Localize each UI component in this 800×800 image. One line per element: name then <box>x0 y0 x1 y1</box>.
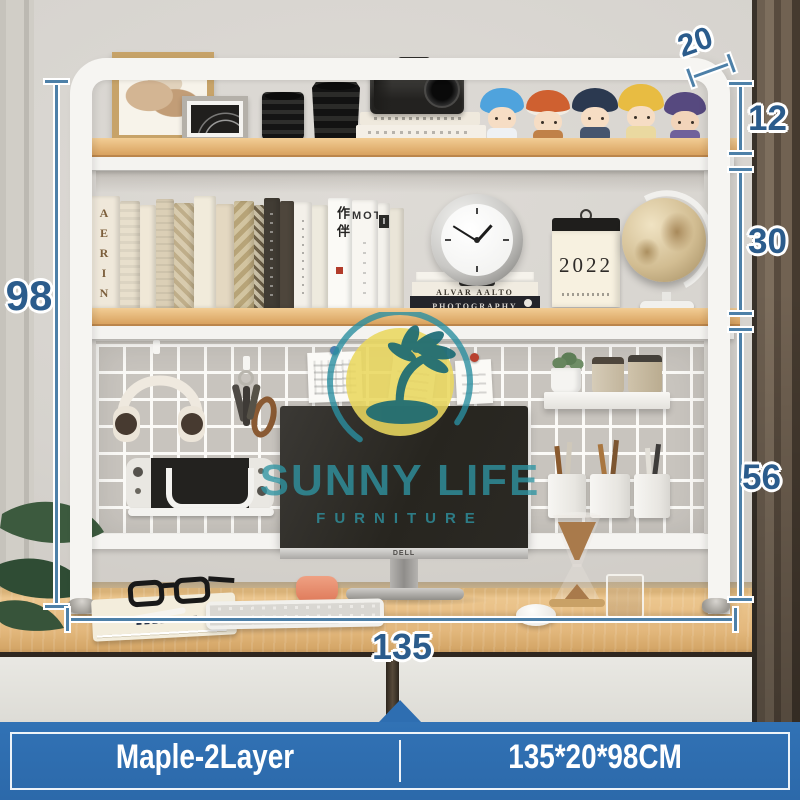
banner-variant-label: Maple-2Layer <box>47 738 364 777</box>
keyboard-keys <box>210 603 380 626</box>
monitor-screen <box>280 406 528 548</box>
water-glass <box>606 574 644 622</box>
dim-tbar <box>729 82 752 85</box>
eyeglasses-lens-left <box>127 579 165 607</box>
keyboard <box>206 598 384 629</box>
coral-trinket-box <box>296 576 338 602</box>
banner-size-label: 135*20*98CM <box>437 738 754 777</box>
dim-label-height: 98 <box>4 272 54 320</box>
dim-label-shelf-gap: 30 <box>748 222 787 262</box>
dim-tbar <box>729 598 752 601</box>
dim-line-top-gap <box>739 84 742 154</box>
dim-label-lower-gap: 56 <box>742 458 781 498</box>
shelf-foot-right <box>702 598 730 614</box>
hourglass-base <box>549 599 605 607</box>
monitor-brand-logo: DELL <box>393 550 415 557</box>
dim-tbar <box>729 328 752 331</box>
dim-tbar <box>45 605 68 608</box>
dim-tbar <box>729 312 752 315</box>
monitor-neck <box>390 559 418 591</box>
dim-tbar <box>729 168 752 171</box>
dim-tbar <box>66 608 69 631</box>
hourglass <box>548 512 606 606</box>
dim-tbar <box>734 608 737 631</box>
dim-tbar <box>45 80 68 83</box>
eyeglasses-temple-arm <box>208 576 234 583</box>
eyeglasses-lens-right <box>173 576 211 604</box>
product-photo-stage: AERIN 作伴 MOT I ALVAR AALTO <box>0 0 800 800</box>
dim-label-length: 135 <box>352 626 452 668</box>
dim-line-shelf-gap <box>739 170 742 314</box>
banner-pointer-triangle <box>378 700 422 723</box>
dim-tbar <box>729 152 752 155</box>
monitor-bezel: DELL <box>280 548 528 559</box>
eyeglasses-bridge <box>162 582 174 588</box>
dim-line-height <box>55 82 58 607</box>
mouse <box>516 604 556 626</box>
dim-label-top-gap: 12 <box>748 99 787 139</box>
dim-line-length <box>68 618 736 621</box>
banner-divider <box>399 740 401 782</box>
